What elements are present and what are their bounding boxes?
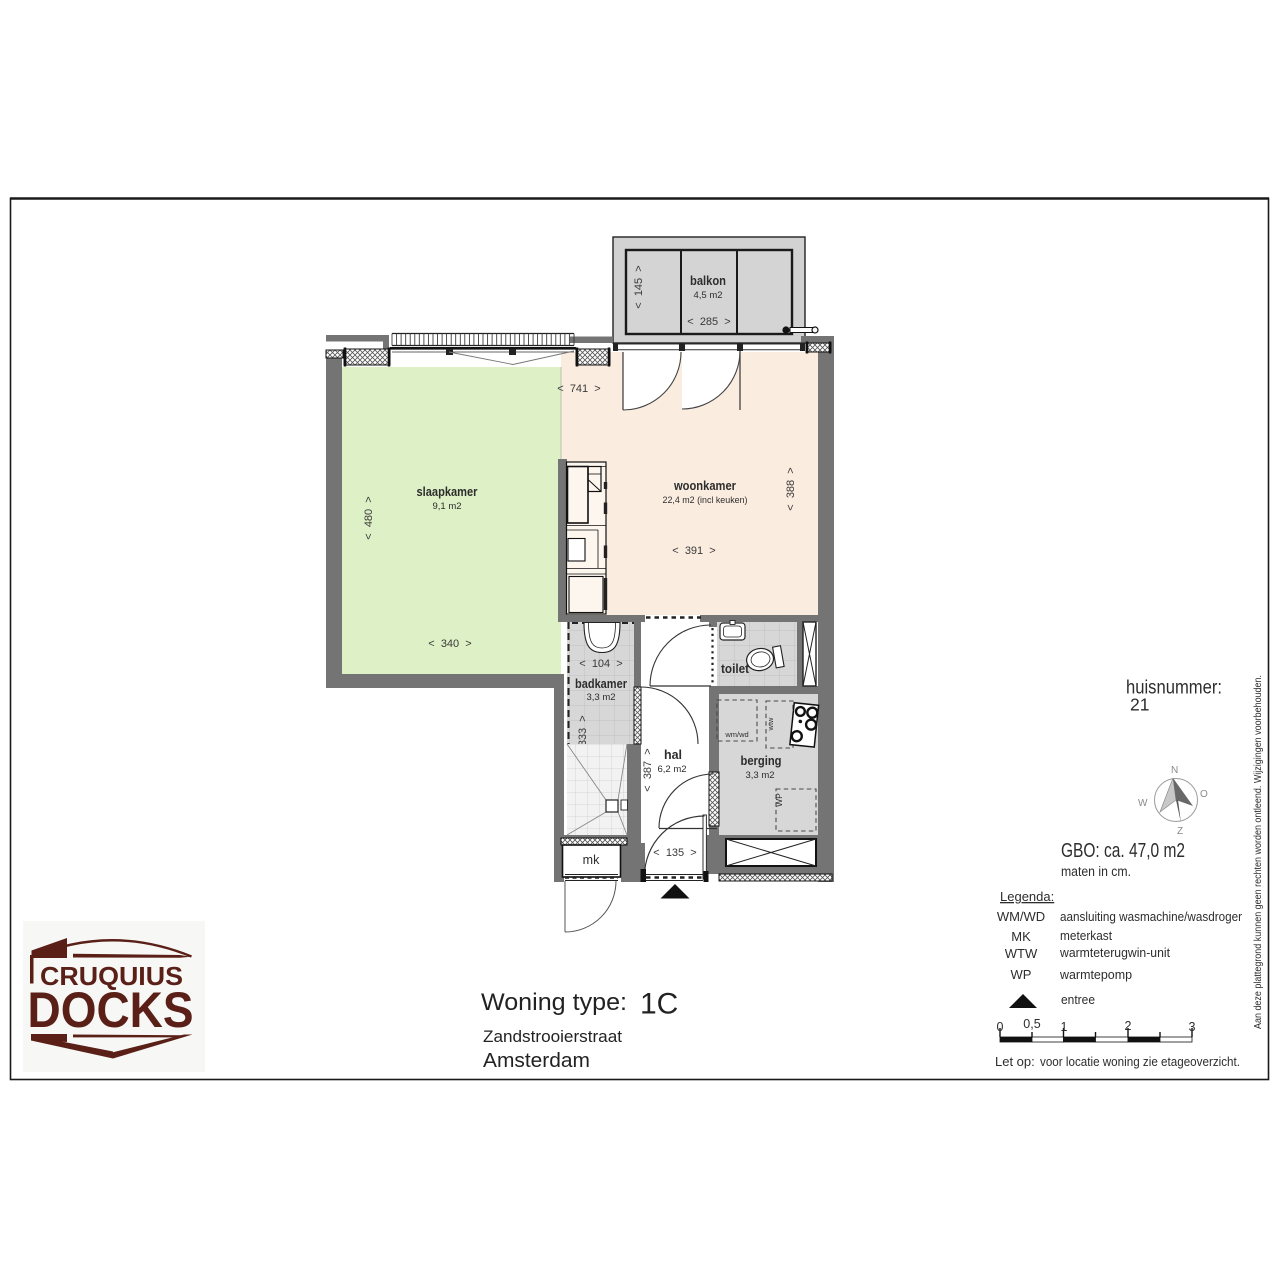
svg-text:N: N — [1171, 765, 1178, 776]
svg-text:mk: mk — [583, 853, 600, 867]
svg-text:WM/WD: WM/WD — [997, 909, 1045, 924]
svg-text:0: 0 — [997, 1020, 1004, 1034]
svg-text:9,1 m2: 9,1 m2 — [432, 501, 461, 512]
svg-text:warmtepomp: warmtepomp — [1059, 967, 1132, 982]
svg-text:3: 3 — [1189, 1020, 1196, 1034]
svg-text:O: O — [1200, 789, 1208, 800]
svg-text:balkon: balkon — [690, 274, 726, 288]
svg-text:maten in cm.: maten in cm. — [1061, 864, 1131, 879]
svg-text:meterkast: meterkast — [1060, 928, 1112, 943]
svg-text:1C: 1C — [640, 988, 678, 1021]
svg-text:wm/wd: wm/wd — [724, 730, 748, 739]
svg-text:Aan deze plattegrond kunnen ge: Aan deze plattegrond kunnen geen rechten… — [1252, 675, 1264, 1029]
svg-text:0,5: 0,5 — [1023, 1017, 1040, 1031]
svg-text:21: 21 — [1130, 695, 1149, 715]
svg-text:< 145 >: < 145 > — [633, 265, 645, 308]
svg-text:slaapkamer: slaapkamer — [417, 484, 478, 499]
svg-text:< 388 >: < 388 > — [785, 467, 797, 510]
svg-text:wtw: wtw — [766, 717, 775, 732]
svg-text:< 741 >: < 741 > — [557, 383, 600, 395]
svg-text:woonkamer: woonkamer — [673, 478, 736, 493]
svg-text:< 135 >: < 135 > — [653, 847, 696, 859]
svg-text:< 104 >: < 104 > — [579, 658, 622, 670]
svg-text:< 480 >: < 480 > — [363, 496, 375, 539]
svg-text:berging: berging — [741, 754, 782, 768]
svg-text:Amsterdam: Amsterdam — [483, 1049, 590, 1072]
svg-text:22,4 m2 (incl keuken): 22,4 m2 (incl keuken) — [663, 495, 748, 506]
svg-text:Legenda:: Legenda: — [1000, 889, 1054, 904]
svg-text:W: W — [1138, 798, 1148, 809]
svg-text:MK: MK — [1011, 929, 1031, 944]
svg-text:Woning type:: Woning type: — [481, 989, 627, 1016]
svg-text:badkamer: badkamer — [575, 677, 627, 691]
svg-text:voor locatie woning zie etageo: voor locatie woning zie etageoverzicht. — [1040, 1054, 1240, 1069]
svg-text:WTW: WTW — [1005, 946, 1038, 961]
svg-text:Let op:: Let op: — [995, 1054, 1035, 1069]
svg-text:Zandstrooierstraat: Zandstrooierstraat — [483, 1028, 622, 1046]
svg-text:GBO: ca. 47,0 m2: GBO: ca. 47,0 m2 — [1061, 839, 1185, 862]
svg-text:warmteterugwin-unit: warmteterugwin-unit — [1059, 945, 1170, 960]
svg-text:WP: WP — [1011, 967, 1032, 982]
svg-text:3,3 m2: 3,3 m2 — [745, 770, 774, 781]
svg-text:2: 2 — [1125, 1019, 1132, 1033]
svg-text:toilet: toilet — [721, 662, 750, 676]
svg-text:3,3 m2: 3,3 m2 — [586, 692, 615, 703]
svg-text:WP: WP — [774, 793, 784, 807]
svg-text:1: 1 — [1061, 1020, 1068, 1034]
svg-text:6,2 m2: 6,2 m2 — [657, 764, 686, 775]
svg-text:4,5 m2: 4,5 m2 — [693, 290, 722, 301]
svg-text:< 387 >: < 387 > — [642, 748, 654, 791]
svg-text:entree: entree — [1061, 992, 1095, 1007]
svg-text:aansluiting wasmachine/wasdrog: aansluiting wasmachine/wasdroger — [1060, 909, 1243, 924]
svg-text:< 340 >: < 340 > — [428, 638, 471, 650]
svg-text:Z: Z — [1177, 826, 1183, 837]
svg-text:DOCKS: DOCKS — [28, 982, 194, 1038]
svg-text:< 391 >: < 391 > — [672, 545, 715, 557]
svg-text:< 285 >: < 285 > — [687, 316, 730, 328]
svg-text:hal: hal — [664, 748, 682, 762]
